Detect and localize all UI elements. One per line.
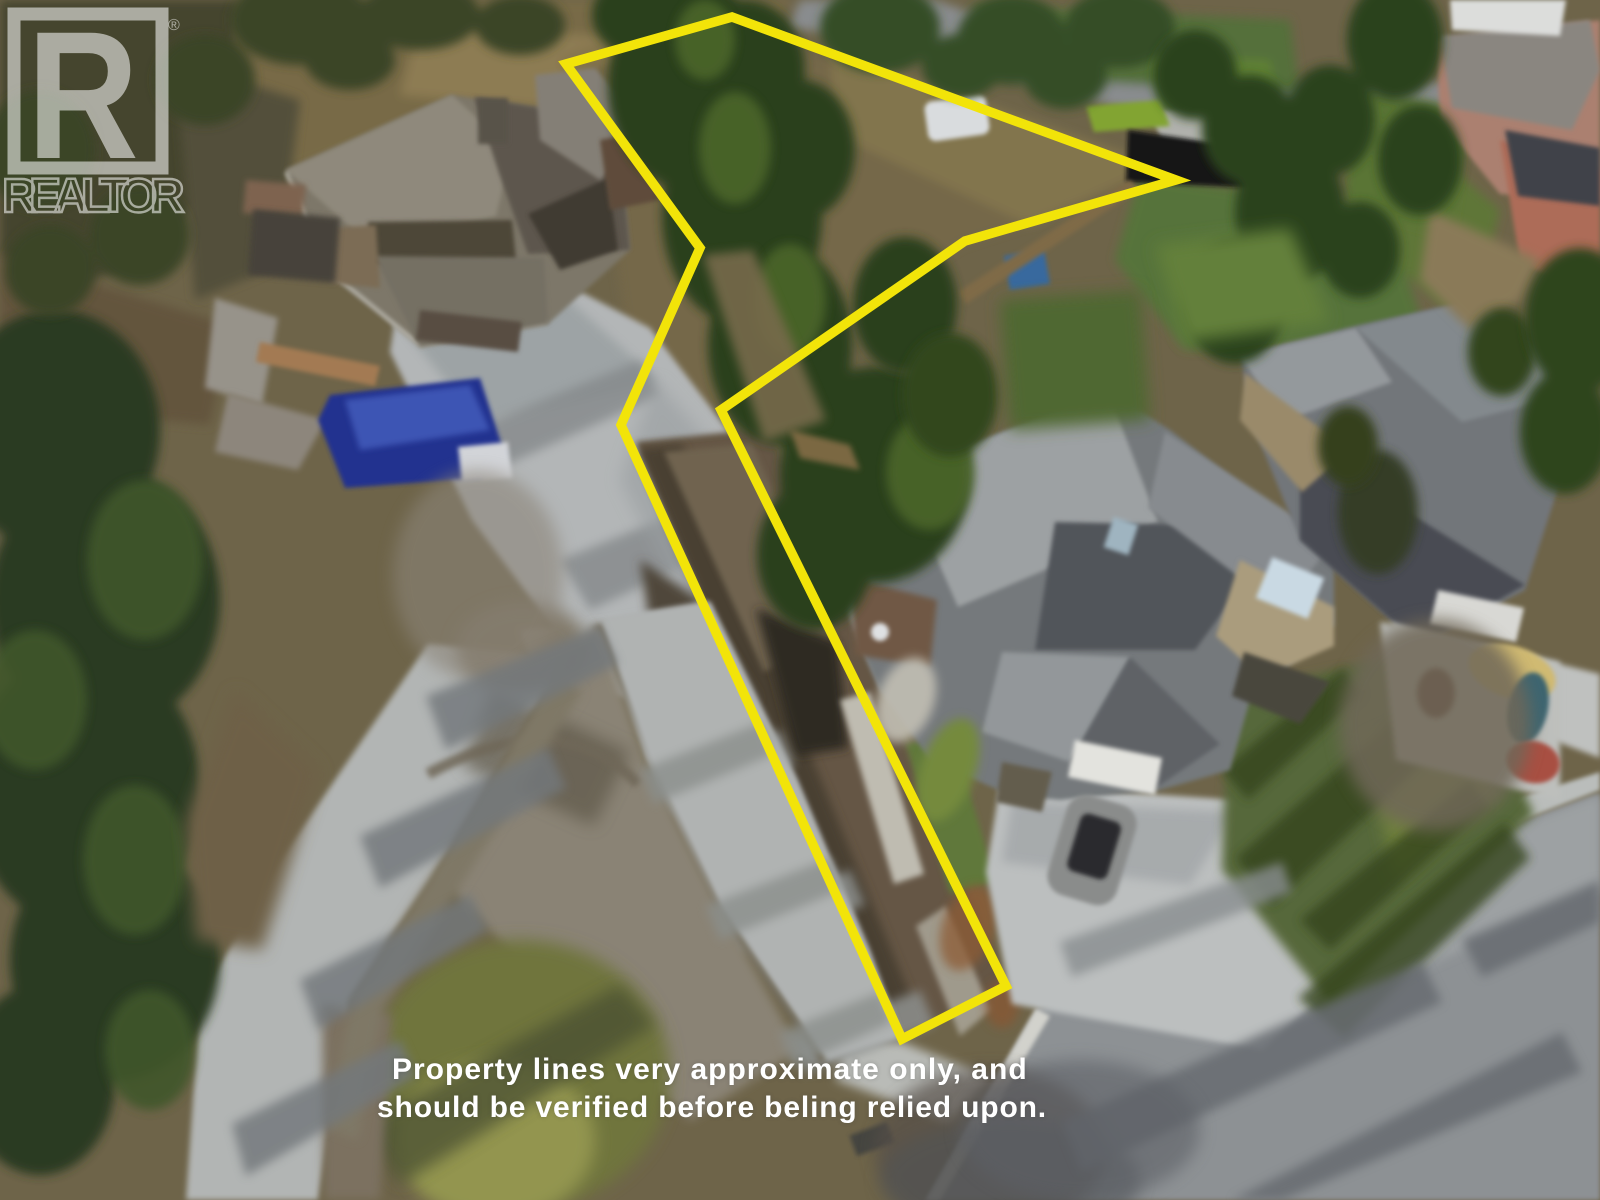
svg-text:®: ® [168,17,180,34]
svg-text:REALTOR: REALTOR [2,170,184,223]
svg-text:R: R [27,0,139,197]
